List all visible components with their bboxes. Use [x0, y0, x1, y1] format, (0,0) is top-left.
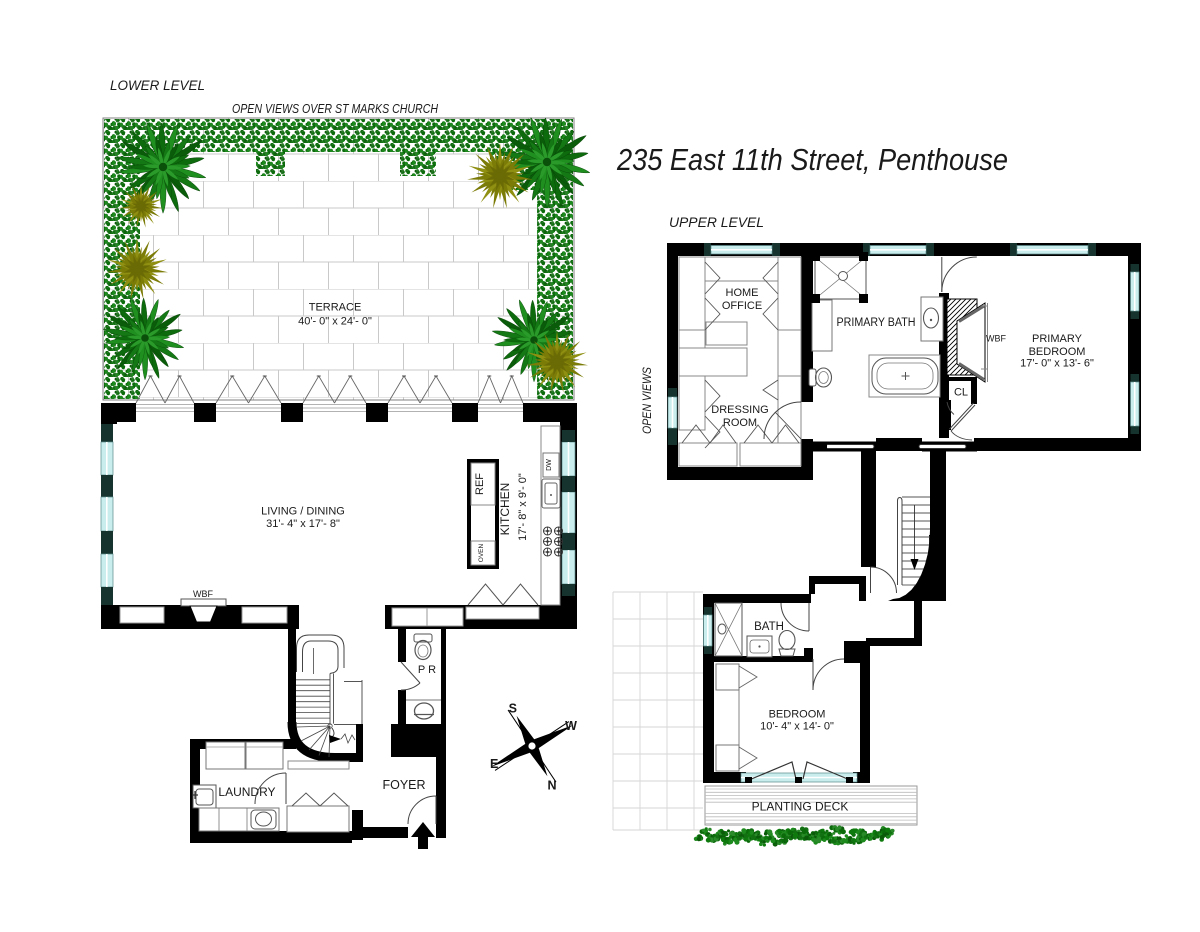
svg-text:CL: CL [954, 387, 968, 399]
svg-text:10'- 4" x 14'- 0": 10'- 4" x 14'- 0" [760, 721, 834, 733]
svg-text:E: E [490, 757, 498, 771]
svg-text:OPEN VIEWS: OPEN VIEWS [642, 367, 654, 434]
svg-text:WBF: WBF [986, 334, 1006, 344]
svg-text:PRIMARY: PRIMARY [1032, 333, 1083, 345]
svg-text:W: W [565, 719, 577, 733]
svg-text:235 East 11th Street, Penthous: 235 East 11th Street, Penthouse [616, 142, 1008, 177]
svg-text:FOYER: FOYER [382, 778, 425, 792]
svg-text:HOME: HOME [726, 287, 759, 299]
svg-text:REF: REF [474, 473, 486, 495]
svg-text:ROOM: ROOM [723, 417, 757, 429]
svg-text:OPEN VIEWS OVER ST MARKS CHURC: OPEN VIEWS OVER ST MARKS CHURCH [232, 102, 439, 116]
svg-text:LAUNDRY: LAUNDRY [218, 785, 275, 799]
svg-text:TERRACE: TERRACE [309, 302, 362, 314]
svg-text:BATH: BATH [754, 621, 784, 633]
svg-text:17'- 8" x 9'- 0": 17'- 8" x 9'- 0" [517, 473, 529, 541]
svg-text:DRESSING: DRESSING [711, 404, 768, 416]
svg-text:OFFICE: OFFICE [722, 300, 762, 312]
svg-text:BEDROOM: BEDROOM [1029, 346, 1086, 358]
svg-text:PRIMARY BATH: PRIMARY BATH [837, 317, 916, 329]
svg-text:N: N [547, 779, 556, 793]
svg-text:DW: DW [546, 459, 553, 471]
svg-text:S: S [509, 702, 517, 716]
svg-text:BEDROOM: BEDROOM [769, 709, 826, 721]
svg-text:P R: P R [418, 664, 436, 676]
svg-text:31'- 4" x 17'- 8": 31'- 4" x 17'- 8" [266, 518, 340, 530]
svg-text:UPPER LEVEL: UPPER LEVEL [669, 214, 764, 230]
svg-text:WBF: WBF [193, 589, 213, 599]
svg-text:KITCHEN: KITCHEN [498, 483, 512, 536]
svg-text:OVEN: OVEN [478, 543, 485, 562]
svg-text:17'- 0" x 13'- 6": 17'- 0" x 13'- 6" [1020, 358, 1094, 370]
svg-text:LIVING / DINING: LIVING / DINING [261, 506, 345, 518]
svg-text:LOWER LEVEL: LOWER LEVEL [110, 77, 205, 93]
svg-text:40'- 0" x 24'- 0": 40'- 0" x 24'- 0" [298, 316, 372, 328]
svg-text:PLANTING DECK: PLANTING DECK [752, 800, 849, 814]
